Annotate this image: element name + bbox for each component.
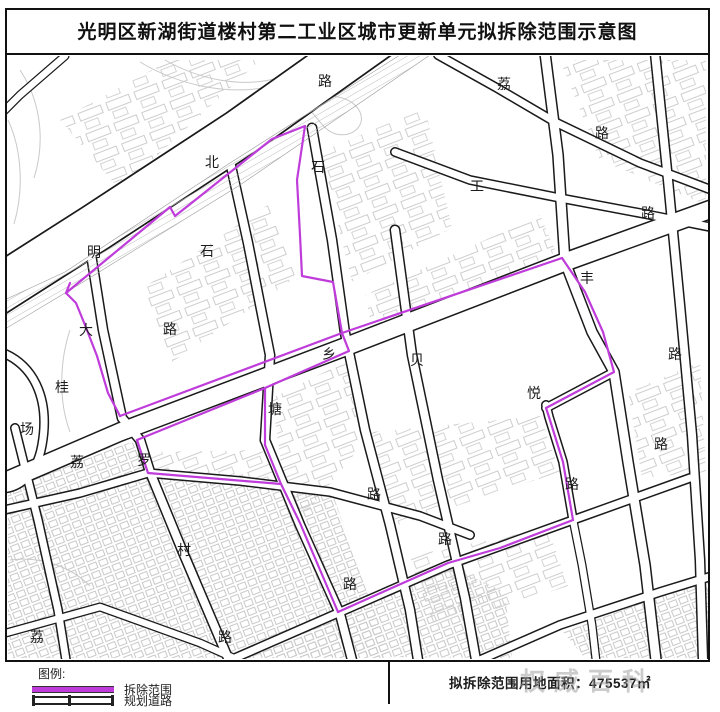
road-label: 贝 bbox=[410, 352, 424, 368]
road-label: 北 bbox=[205, 154, 219, 170]
road-label: 石 bbox=[200, 243, 214, 259]
road-label: 罗 bbox=[137, 452, 151, 468]
road-label: 石 bbox=[311, 159, 325, 175]
road-label: 路 bbox=[367, 486, 381, 502]
road-label: 悦 bbox=[527, 385, 541, 401]
road-label: 路 bbox=[163, 321, 177, 337]
road-label: 塘 bbox=[268, 401, 282, 417]
road-label: 荔 bbox=[30, 629, 44, 645]
road-label: 桂 bbox=[55, 379, 69, 395]
road-label: 工 bbox=[470, 178, 484, 194]
legend-box: 图例: 拆除范围 规划道路 bbox=[5, 662, 390, 704]
road-label: 路 bbox=[565, 476, 579, 492]
title-bar: 光明区新湖街道楼村第二工业区城市更新单元拟拆除范围示意图 bbox=[5, 8, 710, 55]
planned-road-swatch bbox=[32, 695, 114, 706]
road-label: 乡 bbox=[322, 346, 336, 362]
area-note: 拟拆除范围用地面积：475537㎡ bbox=[405, 672, 695, 692]
map-sheet: 路荔路北石工路明石丰大路乡贝路桂悦塘场路荔罗路路路村路荔路 光明区新湖街道楼村第… bbox=[0, 0, 720, 712]
legend-item-label: 规划道路 bbox=[124, 692, 172, 709]
bottom-band: 图例: 拆除范围 规划道路 拟拆除范围用地面积：475537㎡ bbox=[5, 660, 710, 704]
legend-item-planned-road: 规划道路 bbox=[32, 692, 172, 709]
map-canvas: 路荔路北石工路明石丰大路乡贝路桂悦塘场路荔罗路路路村路荔路 bbox=[0, 0, 720, 712]
road-label: 路 bbox=[668, 346, 682, 362]
road-label: 路 bbox=[595, 125, 609, 141]
road-label: 荔 bbox=[70, 454, 84, 470]
road-label: 路 bbox=[343, 576, 357, 592]
road-label: 荔 bbox=[497, 76, 511, 92]
road-label: 场 bbox=[20, 421, 34, 437]
road-label: 明 bbox=[87, 244, 101, 260]
road-label: 大 bbox=[79, 322, 93, 338]
road-label: 路 bbox=[654, 436, 668, 452]
page-title: 光明区新湖街道楼村第二工业区城市更新单元拟拆除范围示意图 bbox=[77, 17, 637, 44]
road-label: 丰 bbox=[580, 270, 594, 286]
legend-heading: 图例: bbox=[38, 665, 65, 682]
road-label: 村 bbox=[177, 542, 191, 558]
road-label: 路 bbox=[438, 531, 452, 547]
road-label: 路 bbox=[318, 73, 332, 89]
road-label: 路 bbox=[641, 205, 655, 221]
road-label: 路 bbox=[218, 629, 232, 645]
